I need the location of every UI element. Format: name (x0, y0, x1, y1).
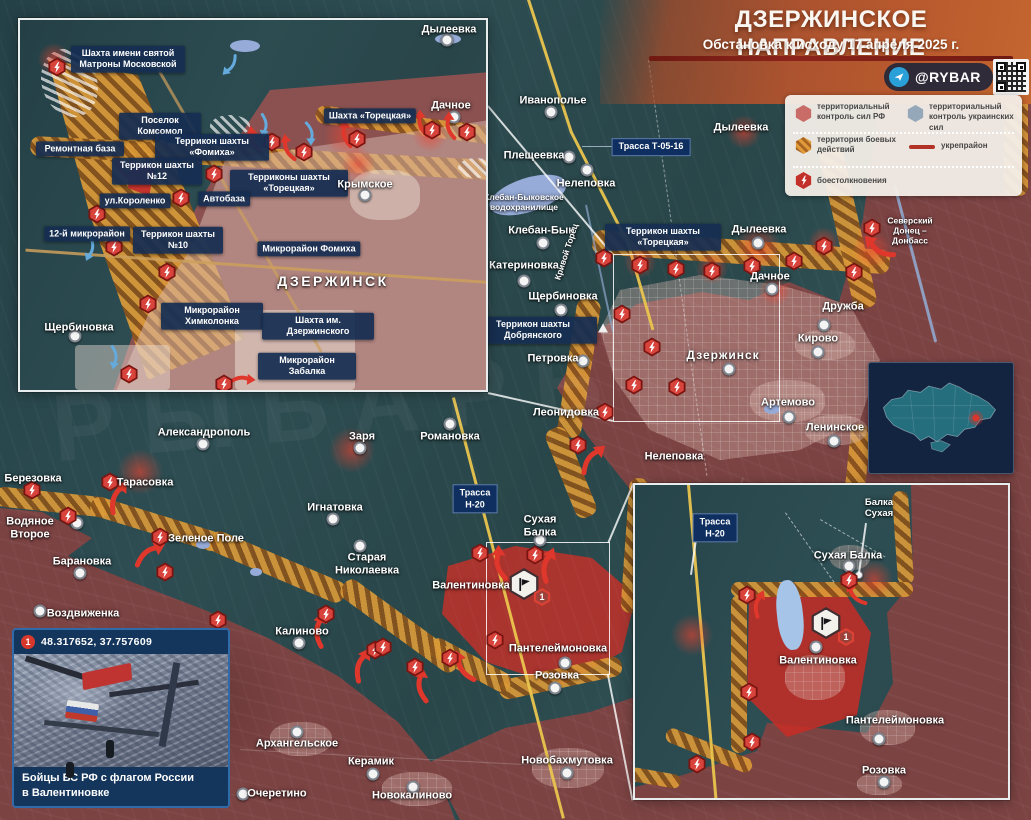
town-label-berezovka: Березовка (4, 473, 61, 486)
qr-code[interactable] (993, 59, 1029, 95)
town-label-valentinovka: Валентиновка (432, 580, 510, 593)
town-label-leninskoye: Ленинское (806, 422, 864, 435)
town-label-romanovka: Романовка (420, 431, 480, 444)
legend-divider (793, 132, 1014, 134)
town-label-pleshcheyevka: Плещеевка (504, 150, 565, 163)
town-marker (561, 767, 574, 780)
facility-label-repair-base: Ремонтная база (36, 141, 124, 156)
combat-zone-band (731, 595, 747, 753)
city-label-dzerzhinsk-inset: ДЗЕРЖИНСК (277, 273, 388, 289)
ravine-label-balka-suhaya: Балка Сухая (865, 498, 893, 520)
town-label-novobahmutovka: Новобахмутовка (521, 755, 613, 768)
advance-arrow-blue (215, 52, 245, 81)
town-marker (559, 657, 572, 670)
town-label-novokalinovo: Новокалиново (372, 790, 452, 803)
ukraine-minimap (868, 362, 1014, 474)
town-label-leonidovka: Леонидовка (533, 407, 599, 420)
town-marker (873, 733, 886, 746)
photo-number-badge: 1 (21, 635, 35, 649)
title-underline (649, 56, 1013, 61)
town-label-rozovka-inset: Розовка (862, 765, 906, 778)
town-label-valentinovka-inset: Валентиновка (779, 655, 857, 668)
facility-label-terrikon-dobryanskogo: Террикон шахты Добрянского (469, 317, 597, 344)
facility-label-heap-12: Террикон шахты №12 (112, 158, 202, 185)
town-label-ocheretino: Очеретино (247, 788, 306, 801)
town-label-panteleymonovka-inset: Пантелеймоновка (846, 715, 944, 728)
canal-label-severskiy-donets: Северский Донец – Донбасс (878, 216, 942, 245)
town-label-dachnoye: Дачное (431, 100, 471, 113)
town-marker (723, 363, 736, 376)
town-marker (752, 237, 765, 250)
facility-label-fomiha-heap: Террикон шахты «Фомиха» (155, 134, 269, 161)
town-label-kleban-byk: Клебан-Бык (508, 225, 574, 238)
town-marker (444, 418, 457, 431)
town-marker (354, 442, 367, 455)
facility-label-himkolonka: Микрорайон Химколонка (161, 303, 263, 330)
map-subtitle: Обстановка к исходу 17 апреля 2025 г. (645, 37, 1017, 52)
photo-coordinates: 48.317652, 37.757609 (41, 636, 152, 648)
channel-handle: @RYBAR (915, 69, 981, 85)
facility-label-dzerzhinsky-mine: Шахта им. Дзержинского (262, 313, 374, 340)
advance-arrow-red (277, 131, 299, 163)
town-marker (581, 164, 594, 177)
road-label-t0516: Трасса Т-05-16 (612, 138, 691, 156)
debris-beam (159, 662, 181, 747)
town-label-dachnoye: Дачное (750, 271, 790, 284)
photo-caption: Бойцы ВС РФ с флагом России в Валентинов… (14, 767, 228, 806)
legend-rf-label: территориальный контроль сил РФ (817, 102, 905, 123)
town-marker (818, 319, 831, 332)
fire-glow (670, 613, 714, 657)
town-label-keramik: Керамик (348, 756, 394, 769)
legend-fortified-label: укрепрайон (941, 141, 1011, 151)
town-label-nelepovka-north: Нелеповка (557, 178, 616, 191)
town-label-druzhba: Дружба (822, 301, 863, 314)
town-label-baranovka: Барановка (53, 556, 112, 569)
town-label-vozdvizhenka: Воздвиженка (47, 608, 120, 621)
qr-eye (996, 62, 1006, 72)
photo-image (14, 654, 228, 767)
town-label-shcherbinovka-inset: Щербиновка (44, 322, 113, 335)
town-marker (367, 768, 380, 781)
town-label-artemovo: Артемово (761, 397, 815, 410)
photo-inset: 1 48.317652, 37.757609 Бойцы ВС РФ с фла… (12, 628, 230, 808)
town-label-arhangelskoye: Архангельское (256, 738, 338, 751)
hatched-area (458, 158, 488, 178)
soldier-silhouette (106, 740, 114, 758)
town-marker (518, 275, 531, 288)
town-label-vodyanoye-vtoroye: Водяное Второе (0, 515, 60, 540)
road-label-n20: Трасса Н-20 (453, 484, 498, 513)
town-marker (34, 605, 47, 618)
facility-label-microdistrict-fomiha: Микрорайон Фомиха (257, 241, 360, 256)
legend-clash-icon (795, 172, 812, 189)
facility-label-korolenko-street: ул.Короленко (100, 193, 171, 208)
town-label-dyleyevka-north: Дылеевка (714, 122, 769, 135)
legend-combat-icon (795, 137, 812, 154)
facility-label-toretskaya-mine: Шахта «Торецкая» (324, 108, 416, 123)
town-label-ignatovka: Игнатовка (307, 502, 363, 515)
town-marker (549, 682, 562, 695)
map-legend: территориальный контроль сил РФ территор… (785, 95, 1022, 196)
advance-arrow-red (486, 542, 513, 582)
town-label-tarasovka: Тарасовка (117, 477, 174, 490)
town-marker (828, 435, 841, 448)
debris-beam (44, 720, 159, 737)
town-marker (327, 513, 340, 526)
town-marker (810, 641, 823, 654)
inset-dzerzhinsk-city: Шахта имени святой Матроны Московской Ды… (18, 18, 488, 392)
town-marker (197, 438, 210, 451)
town-label-kalinovo: Калиново (275, 626, 328, 639)
russian-flag (65, 700, 99, 722)
town-label-zarya: Заря (349, 431, 375, 444)
photo-header: 1 48.317652, 37.757609 (14, 630, 228, 654)
town-marker (766, 283, 779, 296)
facility-label-heap-10: Террикон шахты №10 (133, 227, 223, 254)
qr-eye (996, 82, 1006, 92)
town-label-suhaya-balka: Сухая Балка (512, 513, 568, 538)
telegram-icon (889, 67, 909, 87)
legend-combat-label: территория боевых действий (817, 135, 905, 156)
town-marker (291, 726, 304, 739)
debris-beam (109, 680, 199, 697)
road-label-n20-inset: Трасса Н-20 (693, 513, 738, 542)
city-label-dzerzhinsk: Дзержинск (686, 349, 759, 363)
telegram-channel-badge[interactable]: @RYBAR (884, 63, 993, 91)
town-marker (537, 237, 550, 250)
town-label-petrovka: Петровка (527, 353, 578, 366)
town-label-staraya-nikolayevka: Старая Николаевка (320, 551, 414, 576)
town-marker (783, 411, 796, 424)
legend-fortified-icon (909, 145, 935, 149)
town-label-katerinovka: Катериновка (489, 260, 559, 273)
town-label-krymskoye: Крымское (337, 179, 392, 192)
inset-valentinovka: Трасса Н-20 Балка Сухая Сухая Балка Вале… (633, 483, 1010, 800)
legend-divider (793, 166, 1014, 168)
town-marker (555, 304, 568, 317)
legend-ua-icon (907, 105, 924, 122)
town-label-kirovo: Кирово (798, 333, 838, 346)
town-label-dyleyevka: Дылеевка (422, 24, 477, 37)
red-banner (82, 663, 132, 691)
town-marker (74, 567, 87, 580)
situation-map: РЫБАРЬ (0, 0, 1031, 820)
facility-label-zabalka: Микрорайон Забалка (258, 353, 356, 380)
legend-clash-label: боестолкновения (817, 176, 937, 186)
clash-icon (156, 563, 175, 582)
town-label-zelenoye-pole: Зеленое Поле (168, 533, 244, 546)
map-title: ДЗЕРЖИНСКОЕ НАПРАВЛЕНИЕ (645, 6, 1017, 62)
town-label-panteleymonovka: Пантелеймоновка (509, 643, 607, 656)
town-label-rozovka: Розовка (535, 670, 579, 683)
town-label-nelepovka-south: Нелеповка (645, 451, 704, 464)
facility-label-microdistrict-12: 12-й микрорайон (44, 226, 130, 241)
town-label-suhaya-balka-inset: Сухая Балка (814, 550, 883, 563)
town-label-aleksandropol: Александрополь (158, 427, 251, 440)
ukraine-silhouette (869, 363, 1013, 473)
town-label-shcherbinovka: Щербиновка (528, 291, 597, 304)
facility-label-avtobaza: Автобаза (198, 191, 250, 206)
monument-marker (598, 324, 608, 333)
pond (250, 568, 262, 576)
facility-label-matrona-mine: Шахта имени святой Матроны Московской (71, 46, 185, 73)
soldier-silhouette (66, 762, 74, 778)
town-marker (545, 106, 558, 119)
legend-ua-label: территориальный контроль украинских сил (929, 102, 1017, 133)
water-label-kleban-reservoir: Клебан-Быковское водохранилище (481, 193, 567, 213)
advance-arrow-red (439, 109, 461, 141)
town-marker (812, 346, 825, 359)
town-label-dyleyevka-south: Дылеевка (732, 224, 787, 237)
town-marker (878, 776, 891, 789)
facility-label-terrikon-toretskaya: Террикон шахты «Торецкая» (605, 224, 721, 251)
qr-eye (1016, 62, 1026, 72)
legend-rf-icon (795, 105, 812, 122)
combat-zone-band (892, 491, 915, 586)
town-label-ivanopolye: Иванополье (520, 95, 587, 108)
